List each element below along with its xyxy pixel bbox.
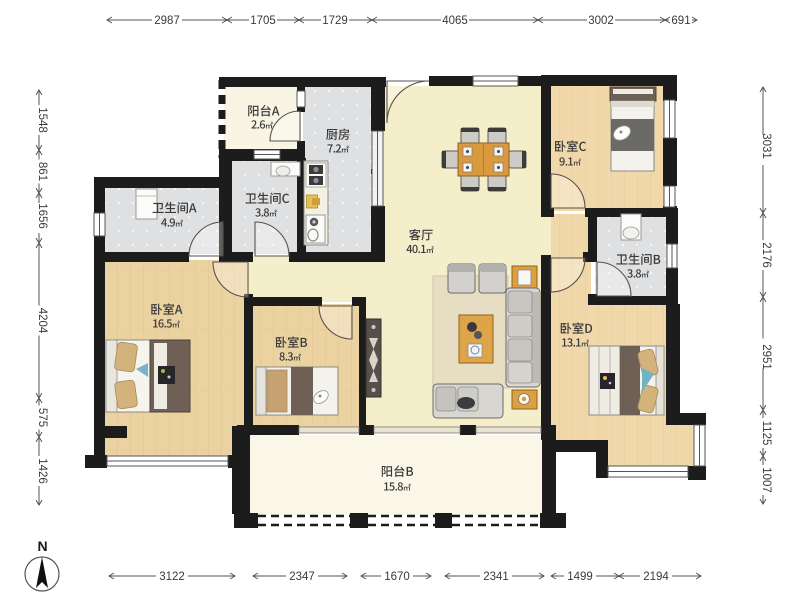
svg-text:1499: 1499 bbox=[567, 571, 593, 583]
svg-text:4065: 4065 bbox=[442, 15, 468, 27]
svg-text:4204: 4204 bbox=[36, 308, 48, 334]
svg-text:1670: 1670 bbox=[384, 571, 410, 583]
svg-text:691: 691 bbox=[671, 15, 690, 27]
svg-text:1705: 1705 bbox=[250, 15, 276, 27]
svg-text:3002: 3002 bbox=[588, 15, 614, 27]
svg-text:2341: 2341 bbox=[483, 571, 509, 583]
svg-text:2347: 2347 bbox=[289, 571, 315, 583]
svg-text:2176: 2176 bbox=[760, 242, 772, 268]
svg-text:1125: 1125 bbox=[760, 421, 772, 446]
svg-text:575: 575 bbox=[36, 408, 48, 427]
svg-text:3122: 3122 bbox=[159, 571, 185, 583]
svg-text:1426: 1426 bbox=[36, 458, 48, 484]
svg-text:2951: 2951 bbox=[760, 344, 772, 370]
svg-text:N: N bbox=[37, 538, 47, 554]
svg-text:3031: 3031 bbox=[760, 133, 772, 159]
svg-text:2194: 2194 bbox=[643, 571, 669, 583]
svg-text:1548: 1548 bbox=[36, 107, 48, 133]
svg-text:1729: 1729 bbox=[322, 15, 348, 27]
svg-text:1007: 1007 bbox=[760, 467, 772, 493]
svg-text:2987: 2987 bbox=[154, 15, 180, 27]
svg-text:1656: 1656 bbox=[36, 203, 48, 229]
svg-text:861: 861 bbox=[36, 162, 48, 181]
